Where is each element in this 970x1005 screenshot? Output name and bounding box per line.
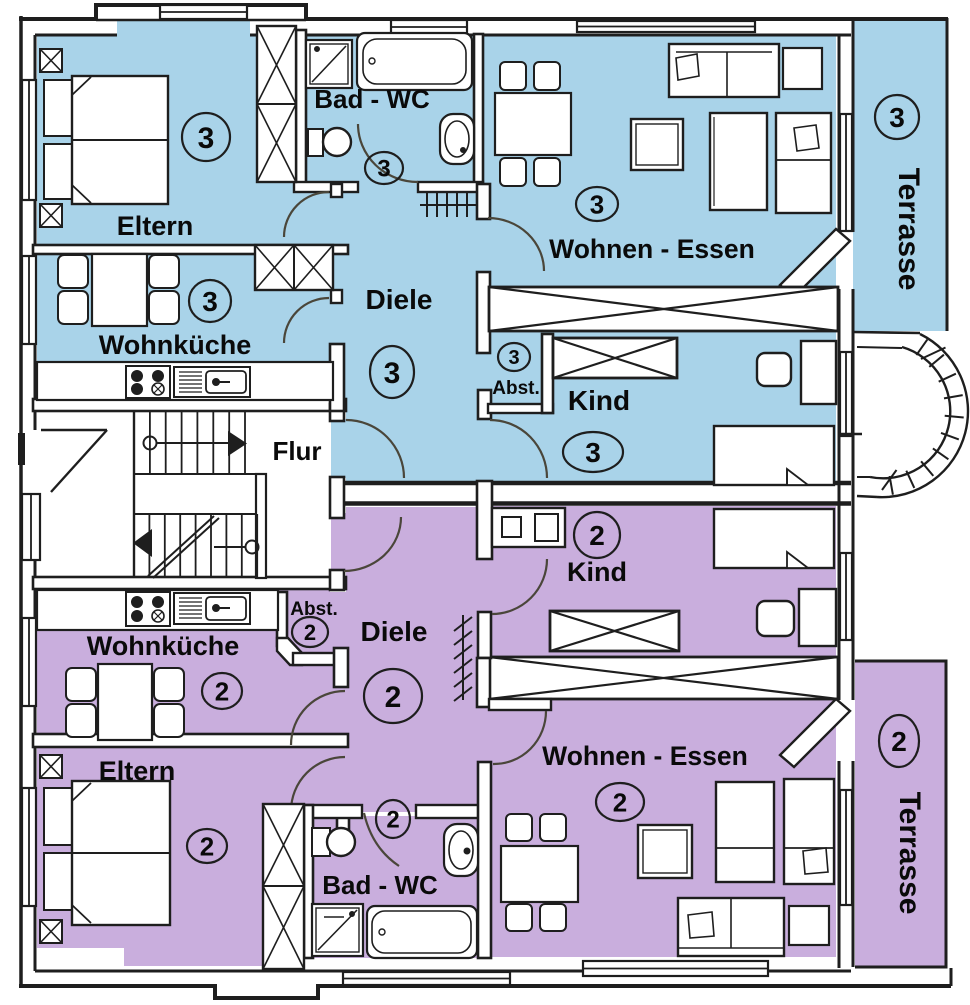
- svg-text:Diele: Diele: [366, 284, 433, 315]
- svg-text:3: 3: [198, 122, 215, 155]
- svg-text:Diele: Diele: [361, 616, 428, 647]
- svg-text:2: 2: [215, 676, 229, 706]
- svg-text:3: 3: [590, 189, 604, 219]
- svg-text:2: 2: [385, 681, 402, 714]
- svg-text:Abst.: Abst.: [492, 378, 540, 399]
- svg-text:Wohnküche: Wohnküche: [99, 330, 252, 360]
- svg-text:Wohnküche: Wohnküche: [87, 631, 240, 661]
- svg-text:3: 3: [377, 156, 390, 183]
- svg-text:2: 2: [613, 787, 627, 817]
- svg-text:3: 3: [384, 357, 401, 390]
- svg-text:3: 3: [889, 102, 905, 133]
- svg-text:3: 3: [202, 286, 218, 317]
- svg-text:2: 2: [589, 520, 605, 551]
- svg-text:Eltern: Eltern: [117, 211, 194, 241]
- svg-text:Wohnen - Essen: Wohnen - Essen: [549, 234, 755, 264]
- svg-text:3: 3: [585, 437, 601, 468]
- svg-text:Terrasse: Terrasse: [893, 792, 926, 915]
- svg-text:2: 2: [304, 620, 316, 645]
- svg-text:Bad - WC: Bad - WC: [322, 870, 438, 900]
- svg-text:Kind: Kind: [567, 557, 627, 587]
- svg-text:Flur: Flur: [272, 436, 321, 466]
- svg-text:Eltern: Eltern: [99, 756, 176, 786]
- svg-text:Bad - WC: Bad - WC: [314, 84, 430, 114]
- svg-text:3: 3: [508, 347, 519, 369]
- svg-text:2: 2: [386, 807, 399, 834]
- svg-text:Wohnen - Essen: Wohnen - Essen: [542, 741, 748, 771]
- svg-text:Terrasse: Terrasse: [892, 168, 925, 291]
- svg-text:2: 2: [891, 726, 907, 757]
- svg-text:Kind: Kind: [568, 385, 630, 416]
- svg-text:2: 2: [200, 831, 214, 861]
